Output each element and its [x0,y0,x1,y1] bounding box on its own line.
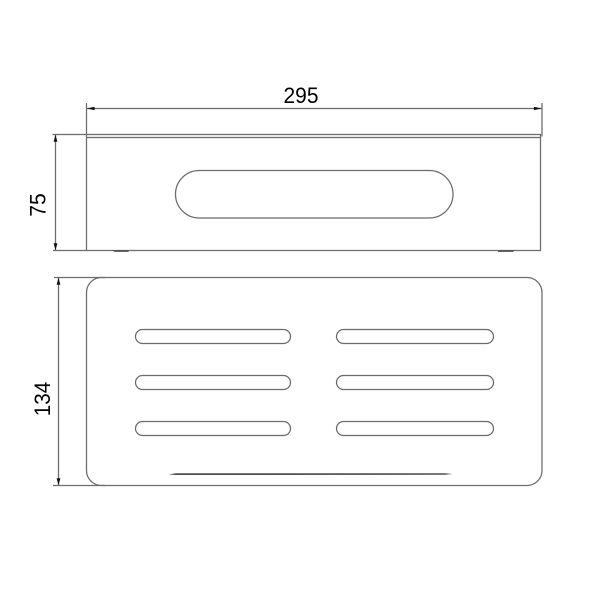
svg-text:75: 75 [26,193,51,217]
svg-text:134: 134 [30,382,55,417]
svg-text:295: 295 [284,83,319,108]
